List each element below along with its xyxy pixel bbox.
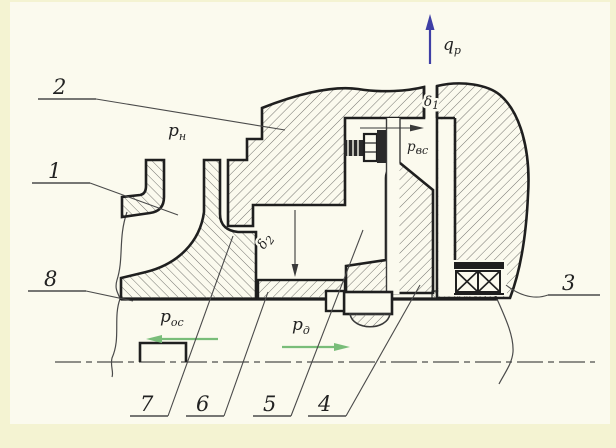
part-label-4: 4 [317,392,331,416]
part-label-7: 7 [140,392,154,416]
part-label-8: 8 [44,267,57,291]
leakage-gap-channel [438,119,453,296]
technical-drawing: 2 1 8 7 6 5 4 3 pн qр δ1 pвс δ2 pос pд [0,0,616,448]
gland-packing-seal [452,260,507,296]
part-label-2: 2 [52,75,66,99]
part-label-5: 5 [263,392,276,416]
part-label-1: 1 [48,159,61,183]
diagram-canvas: 2 1 8 7 6 5 4 3 pн qр δ1 pвс δ2 pос pд [0,0,616,448]
disc-lock-nut [344,292,392,314]
part-label-6: 6 [196,392,209,416]
part-label-3: 3 [562,271,575,295]
